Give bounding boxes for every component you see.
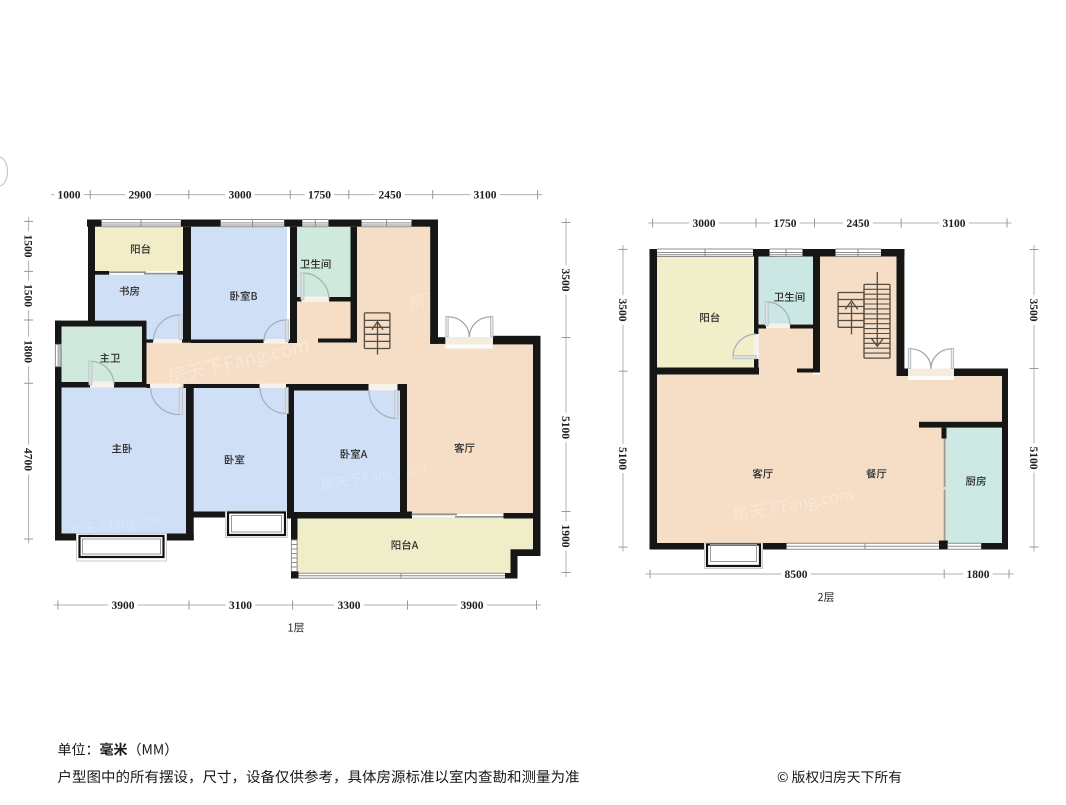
svg-text:3500: 3500 [1027,299,1039,322]
svg-text:1800: 1800 [22,340,34,363]
svg-text:3500: 3500 [616,299,628,322]
svg-text:5100: 5100 [559,416,571,439]
svg-text:1800: 1800 [967,569,990,581]
svg-text:3100: 3100 [474,190,497,202]
svg-text:2450: 2450 [847,218,870,230]
svg-text:1750: 1750 [308,190,331,202]
svg-text:3000: 3000 [229,190,252,202]
svg-text:1000: 1000 [58,190,81,202]
svg-text:8500: 8500 [785,569,808,581]
svg-text:5100: 5100 [1027,447,1039,470]
svg-text:3100: 3100 [943,218,966,230]
svg-text:1500: 1500 [22,284,34,307]
svg-text:3900: 3900 [461,600,484,612]
svg-text:1500: 1500 [22,235,34,258]
svg-text:3900: 3900 [112,600,135,612]
svg-text:1750: 1750 [774,218,797,230]
svg-text:2900: 2900 [129,190,152,202]
svg-text:1900: 1900 [559,525,571,548]
svg-text:3000: 3000 [693,218,716,230]
svg-text:3100: 3100 [229,600,252,612]
svg-text:4700: 4700 [22,448,34,471]
svg-text:3300: 3300 [338,600,361,612]
svg-text:2450: 2450 [379,190,402,202]
svg-text:5100: 5100 [616,447,628,470]
svg-text:3500: 3500 [559,269,571,292]
